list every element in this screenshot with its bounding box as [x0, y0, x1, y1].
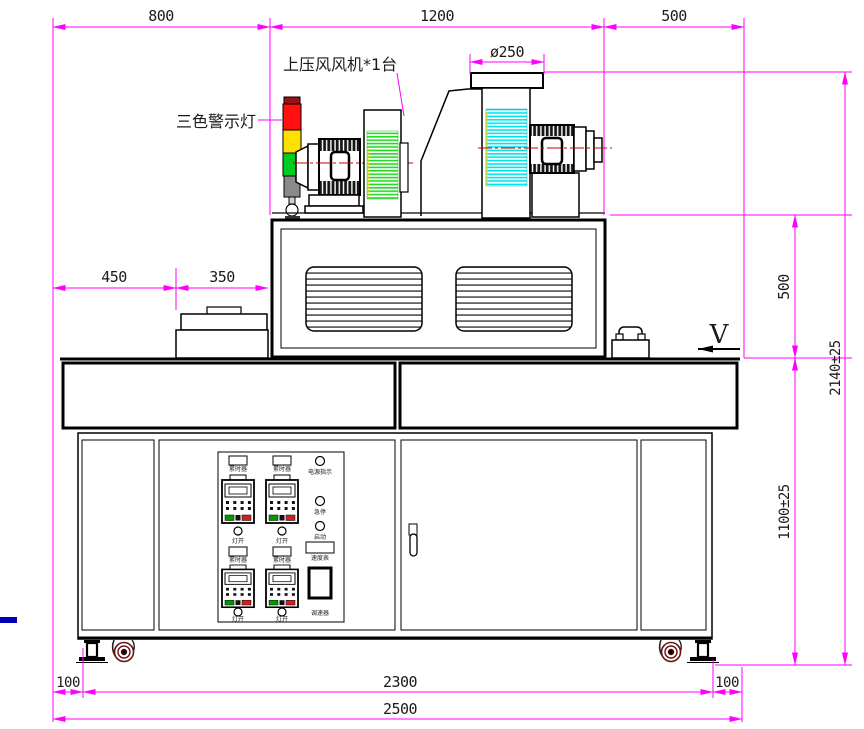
- lamp-switch-4: [278, 608, 286, 616]
- speed-meter: [306, 542, 334, 553]
- top-pressure-fan: [364, 110, 408, 217]
- timer-label-4: 累时器: [273, 556, 291, 564]
- dim-left-350: 350: [209, 268, 235, 286]
- emergency-stop-label: 急停: [314, 508, 326, 516]
- left-vent-grille: [306, 267, 422, 331]
- left-leveling-foot: [76, 640, 108, 663]
- left-fan-motor: [296, 139, 363, 213]
- dim-diameter-250: ø250: [490, 43, 525, 61]
- blue-mark: [0, 617, 17, 623]
- junction-box: [612, 327, 649, 358]
- timer-controller-1: [222, 475, 254, 523]
- right-fan-motor: [530, 125, 602, 217]
- yellow-light: [283, 130, 301, 153]
- drawing-canvas: 累时器 累时器 电源指示 急停 启动 灯开 灯开 累时器 累时器 灯开 灯开: [0, 0, 864, 729]
- timer-label-1: 累时器: [229, 465, 247, 473]
- timer-label-2: 累时器: [273, 465, 291, 473]
- warning-light-label: 三色警示灯: [176, 112, 256, 131]
- dim-bottom-100-left: 100: [56, 675, 80, 691]
- speed-meter-label: 速度表: [311, 554, 329, 562]
- cabinet-left-door: [82, 440, 154, 630]
- blower-scroll-panel: [421, 89, 482, 216]
- machine-elevation: 累时器 累时器 电源指示 急停 启动 灯开 灯开 累时器 累时器 灯开 灯开: [0, 73, 740, 663]
- emergency-stop-button: [316, 497, 325, 506]
- base-cabinet: [78, 433, 712, 639]
- right-leveling-foot: [687, 640, 719, 663]
- uv-oven-body: [272, 220, 605, 357]
- timer-indicator-3: [229, 547, 247, 556]
- start-label: 启动: [314, 533, 326, 541]
- lamp-switch-label-4: 灯开: [276, 615, 288, 623]
- door-handle-plate: [409, 524, 417, 535]
- control-panel: 累时器 累时器 电源指示 急停 启动 灯开 灯开 累时器 累时器 灯开 灯开: [218, 452, 344, 623]
- power-indicator-lamp: [316, 457, 325, 466]
- lamp-switch-label-2: 灯开: [276, 537, 288, 545]
- dim-bottom-2500: 2500: [383, 700, 418, 718]
- dim-top-500: 500: [661, 7, 687, 25]
- cad-drawing-page: 累时器 累时器 电源指示 急停 启动 灯开 灯开 累时器 累时器 灯开 灯开: [0, 0, 864, 729]
- conveyor-entry: [176, 307, 268, 358]
- timer-controller-4: [266, 565, 298, 607]
- dim-right-1100: 1100±25: [777, 484, 793, 540]
- fan-label: 上压风风机*1台: [283, 55, 397, 74]
- tower-rod: [289, 197, 295, 204]
- box-handle: [619, 327, 642, 334]
- dim-top-1200: 1200: [420, 7, 455, 25]
- left-caster: [113, 640, 135, 662]
- timer-indicator-1: [229, 456, 247, 465]
- right-vent-grille: [456, 267, 572, 331]
- tower-cap: [284, 97, 300, 104]
- work-table: [60, 359, 740, 428]
- dim-bottom-2300: 2300: [383, 673, 418, 691]
- lamp-switch-label-3: 灯开: [232, 615, 244, 623]
- timer-indicator-2: [273, 456, 291, 465]
- tower-ball-joint: [286, 204, 298, 216]
- door-handle: [410, 534, 417, 556]
- speed-regulator-label: 调速器: [311, 609, 329, 617]
- lamp-switch-3: [234, 608, 242, 616]
- dim-right-500: 500: [775, 274, 793, 300]
- view-direction-label: V: [709, 320, 730, 350]
- cabinet-right-door: [641, 440, 706, 630]
- right-caster: [660, 640, 682, 662]
- lamp-switch-label-1: 灯开: [232, 537, 244, 545]
- dim-left-450: 450: [101, 268, 127, 286]
- lamp-switch-2: [278, 527, 286, 535]
- timer-controller-3: [222, 565, 254, 607]
- dim-right-2140: 2140±25: [828, 340, 844, 396]
- dim-bottom-100-right: 100: [715, 675, 739, 691]
- red-light: [283, 104, 301, 130]
- power-indicator-label: 电源指示: [308, 468, 332, 476]
- timer-label-3: 累时器: [229, 556, 247, 564]
- dim-top-800: 800: [148, 7, 174, 25]
- start-button: [316, 522, 325, 531]
- cabinet-center-door: [401, 440, 637, 630]
- lamp-switch-1: [234, 527, 242, 535]
- timer-controller-2: [266, 475, 298, 523]
- speed-regulator-knob: [309, 568, 331, 598]
- timer-indicator-4: [273, 547, 291, 556]
